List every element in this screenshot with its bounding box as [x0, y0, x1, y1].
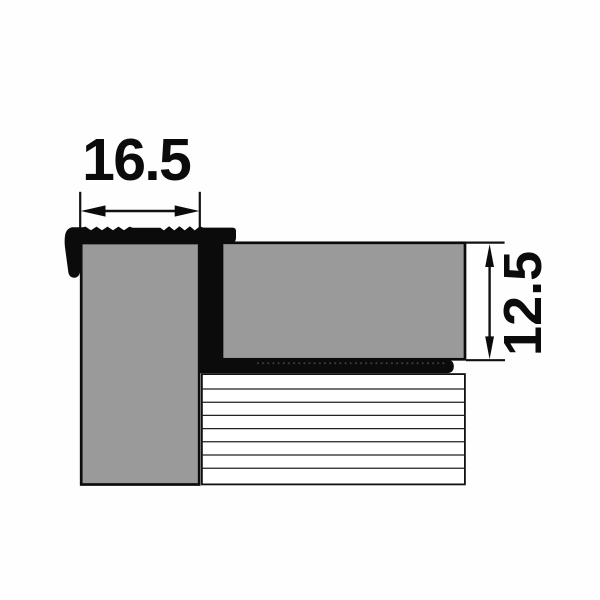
svg-text:12.5: 12.5	[493, 251, 553, 356]
svg-text:16.5: 16.5	[82, 127, 191, 193]
